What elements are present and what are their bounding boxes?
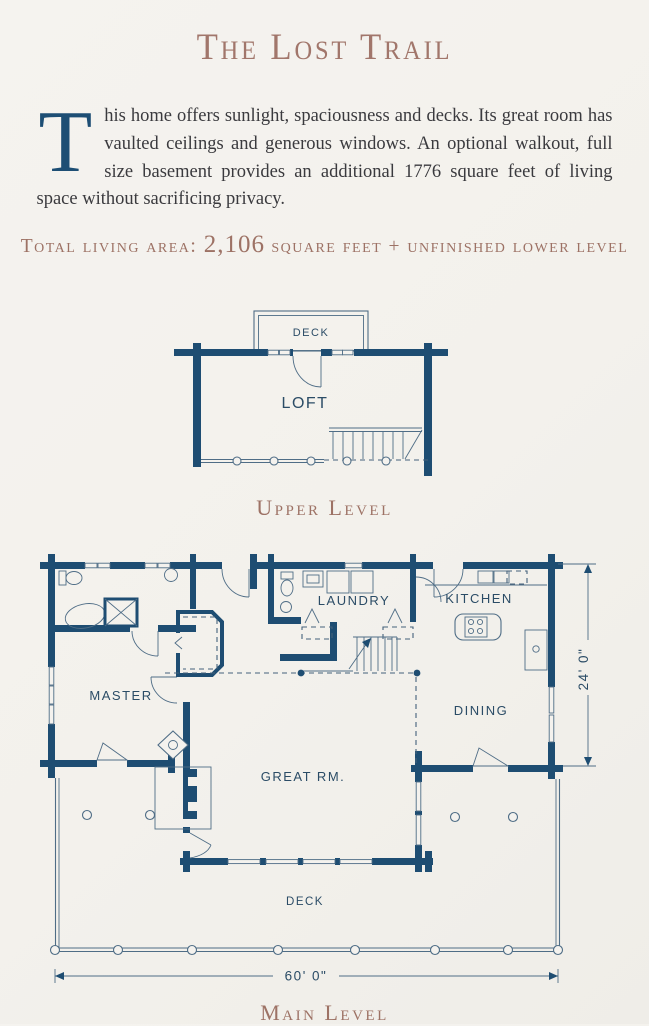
- main-level-caption: Main Level: [0, 1000, 649, 1026]
- page-title: The Lost Trail: [19, 0, 629, 69]
- room-label-deck: DECK: [286, 896, 324, 908]
- room-label-laundry: LAUNDRY: [317, 593, 389, 608]
- total-area-value: 2,106: [204, 231, 265, 258]
- dimension-depth: 24' 0": [558, 564, 596, 766]
- room-label-great-room: GREAT RM.: [260, 769, 345, 784]
- kitchen-fixtures: [425, 571, 547, 670]
- intro-text: his home offers sunlight, spaciousness a…: [37, 106, 613, 209]
- upper-railing: [201, 457, 390, 465]
- intro-paragraph: This home offers sunlight, spaciousness …: [37, 103, 613, 214]
- total-area-suffix: square feet + unfinished lower level: [271, 236, 628, 257]
- dimension-depth-label: 24' 0": [576, 648, 591, 691]
- main-doors: [97, 569, 508, 858]
- upper-level-caption: Upper Level: [0, 495, 649, 521]
- upper-level-plan: DECK: [0, 299, 638, 489]
- room-label-kitchen: KITCHEN: [445, 591, 513, 606]
- upper-deck-door: [293, 356, 321, 387]
- total-area-label: Total living area:: [21, 236, 198, 257]
- upper-stairs: [324, 428, 428, 460]
- drop-cap: T: [37, 103, 105, 176]
- fireplace: [155, 767, 211, 829]
- room-label-master: MASTER: [89, 688, 152, 703]
- main-deck-outline: DECK: [50, 778, 562, 955]
- main-level-plan: DECK: [0, 545, 649, 1000]
- room-label-dining: DINING: [453, 703, 508, 718]
- upper-deck-outline: DECK: [254, 311, 368, 351]
- total-living-area: Total living area: 2,106 square feet + u…: [0, 231, 649, 259]
- room-label-loft: LOFT: [281, 395, 328, 412]
- main-level-drawing: DECK: [35, 545, 615, 995]
- dimension-width: 60' 0": [55, 969, 558, 984]
- room-label-deck: DECK: [292, 327, 329, 339]
- upper-level-drawing: DECK: [164, 299, 464, 484]
- entry-closet: [175, 612, 222, 675]
- catalog-page: The Lost Trail This home offers sunlight…: [0, 0, 649, 1024]
- dimension-width-label: 60' 0": [284, 969, 327, 984]
